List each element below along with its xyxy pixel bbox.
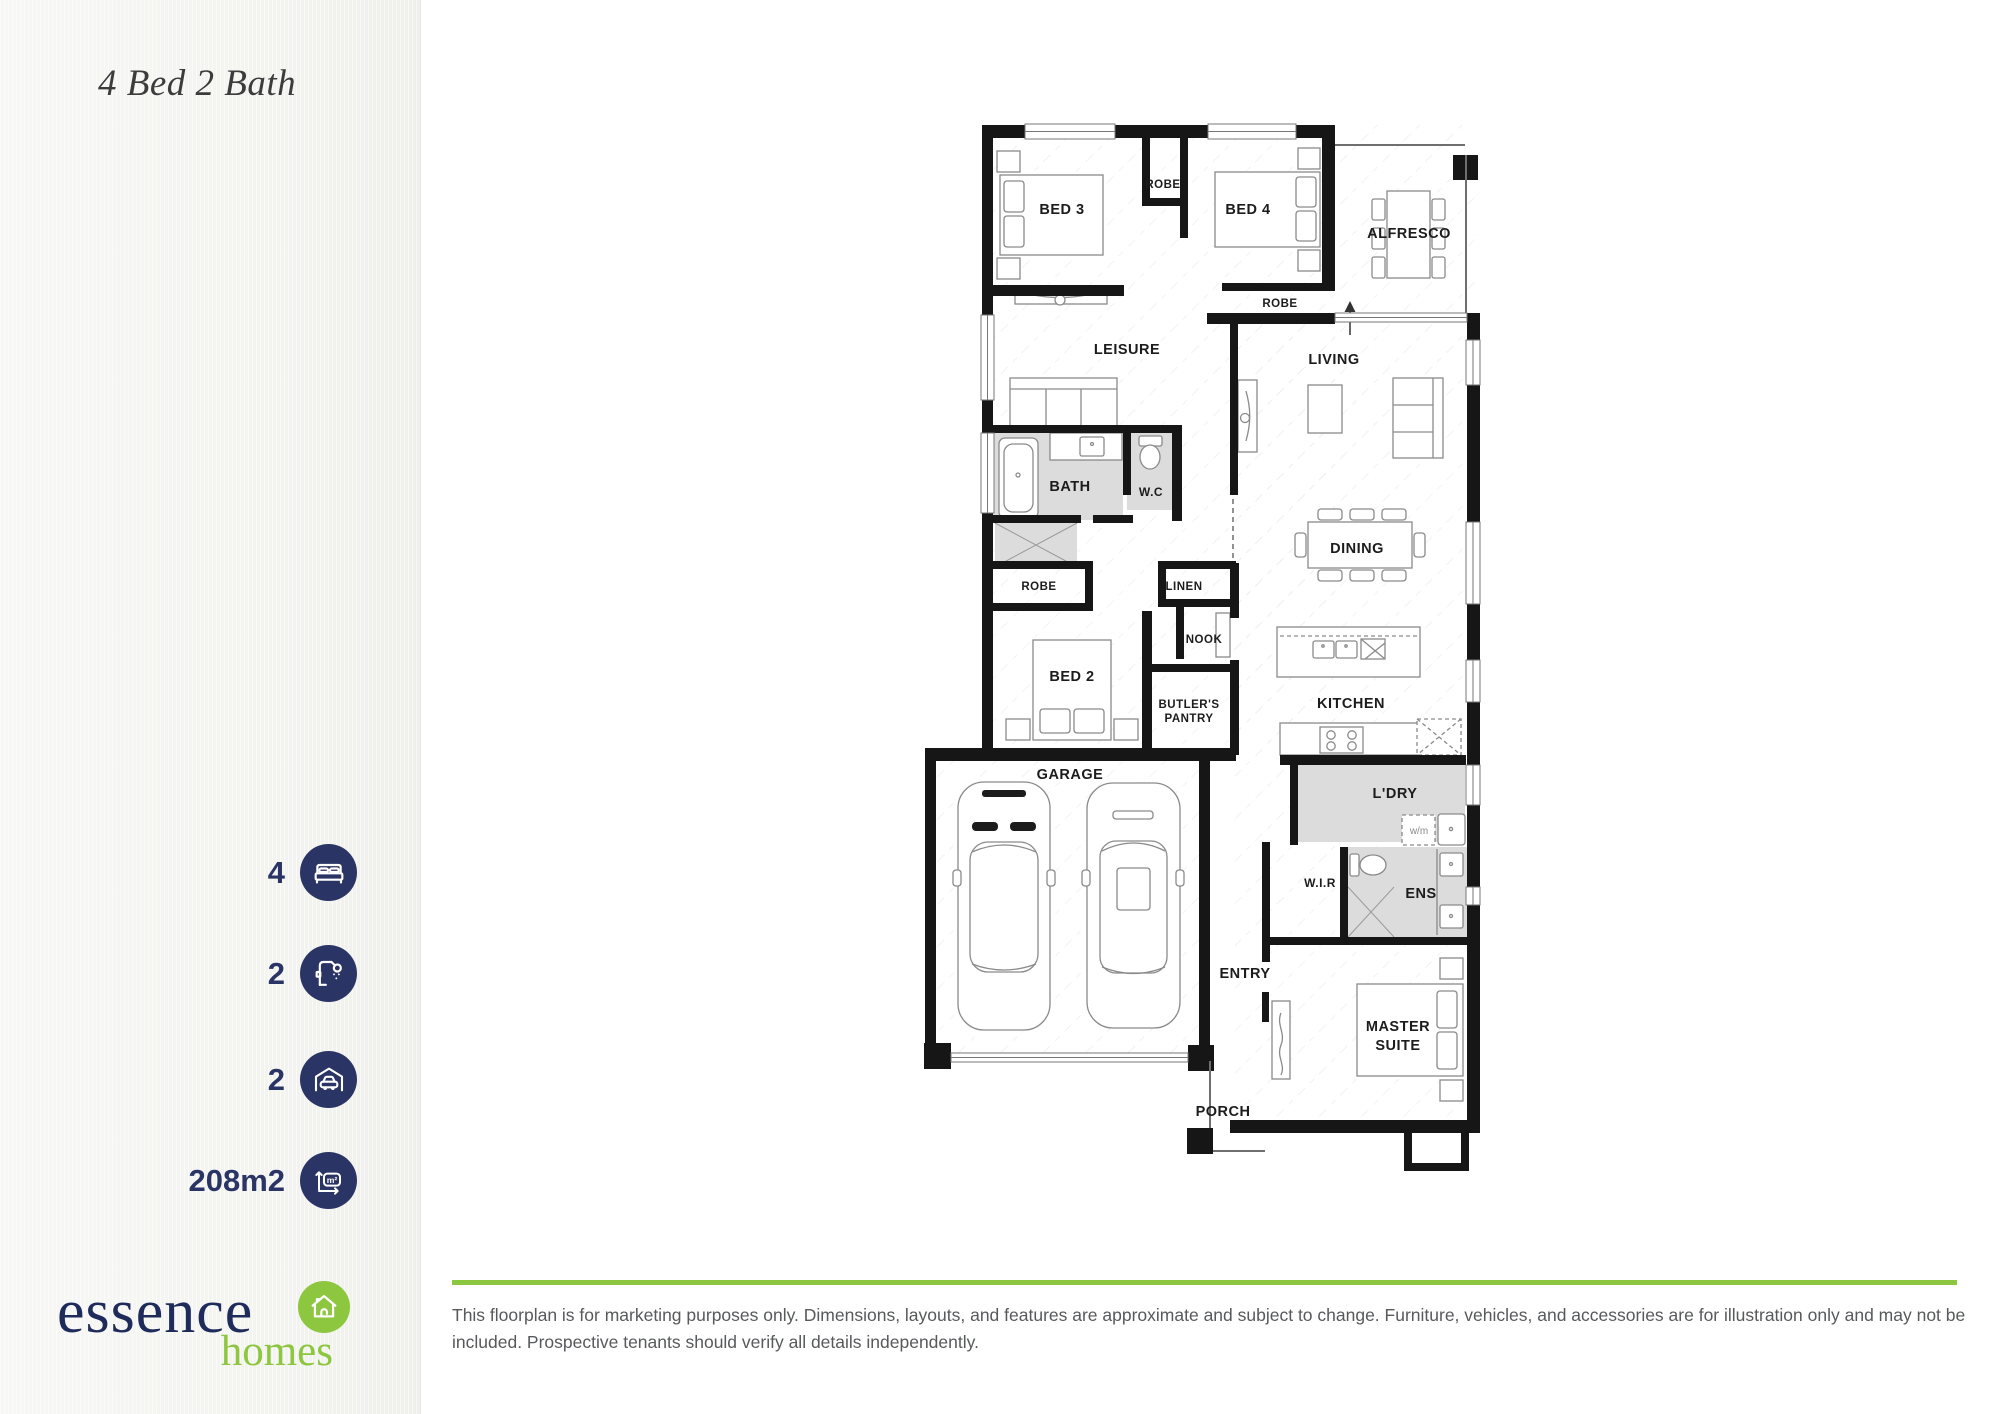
room-label-leisure: LEISURE — [1094, 342, 1160, 358]
brand-tagline: homes — [57, 1330, 333, 1373]
room-label-laundry: L'DRY — [1373, 786, 1418, 802]
room-label-entry: ENTRY — [1219, 966, 1270, 982]
entry-console — [1272, 1001, 1290, 1079]
stat-garage: 2 — [268, 1051, 357, 1108]
room-label-alfresco: ALFRESCO — [1367, 226, 1451, 242]
area-icon-unit: m² — [326, 1175, 337, 1185]
room-label-ens: ENS — [1405, 886, 1436, 902]
room-label-wm: w/m — [1409, 826, 1428, 837]
room-label-wc: W.C — [1139, 485, 1163, 499]
room-label-master-1: MASTER — [1366, 1019, 1430, 1035]
footer-divider — [452, 1280, 1957, 1285]
room-label-bed4: BED 4 — [1225, 202, 1270, 218]
stat-area: 208m2 m² — [188, 1152, 357, 1209]
car-2 — [1082, 783, 1184, 1028]
shower-icon — [300, 945, 357, 1002]
floorplan: BED 3 ROBE BED 4 ALFRESCO LEISURE LIVING… — [920, 115, 1505, 1175]
room-label-robe-bed2: ROBE — [1021, 581, 1056, 593]
room-label-living: LIVING — [1308, 352, 1359, 368]
room-label-linen: LINEN — [1166, 581, 1203, 593]
bedroom-count: 4 — [268, 844, 285, 901]
room-label-porch: PORCH — [1196, 1104, 1251, 1120]
room-label-bed2: BED 2 — [1049, 669, 1094, 685]
room-label-robe-top: ROBE — [1145, 179, 1180, 191]
stat-bathrooms: 2 — [268, 945, 357, 1002]
room-label-robe-bed4: ROBE — [1262, 298, 1297, 310]
room-label-kitchen: KITCHEN — [1317, 696, 1385, 712]
disclaimer-text: This floorplan is for marketing purposes… — [452, 1302, 1967, 1356]
stat-bedrooms: 4 — [268, 844, 357, 901]
room-label-garage: GARAGE — [1037, 767, 1104, 783]
room-label-master-2: SUITE — [1375, 1038, 1420, 1054]
car-1 — [953, 782, 1055, 1030]
garage-count: 2 — [268, 1051, 285, 1108]
bed-icon — [300, 844, 357, 901]
room-label-bed3: BED 3 — [1039, 202, 1084, 218]
room-label-nook: NOOK — [1186, 634, 1223, 646]
bathroom-count: 2 — [268, 945, 285, 1002]
brand-logo: essence homes — [57, 1281, 349, 1391]
room-label-dining: DINING — [1330, 541, 1384, 557]
room-label-wir: W.I.R — [1304, 876, 1336, 890]
room-label-butlers-1: BUTLER'S — [1158, 699, 1219, 711]
sidebar: 4 Bed 2 Bath 4 2 — [0, 0, 421, 1414]
garage-icon — [300, 1051, 357, 1108]
room-label-bath: BATH — [1049, 479, 1090, 495]
room-label-butlers-2: PANTRY — [1165, 713, 1214, 725]
house-icon — [298, 1281, 350, 1333]
area-icon: m² — [300, 1152, 357, 1209]
page-title: 4 Bed 2 Bath — [98, 62, 296, 105]
area-value: 208m2 — [188, 1152, 285, 1209]
floorplan-page: 4 Bed 2 Bath 4 2 — [0, 0, 2000, 1414]
